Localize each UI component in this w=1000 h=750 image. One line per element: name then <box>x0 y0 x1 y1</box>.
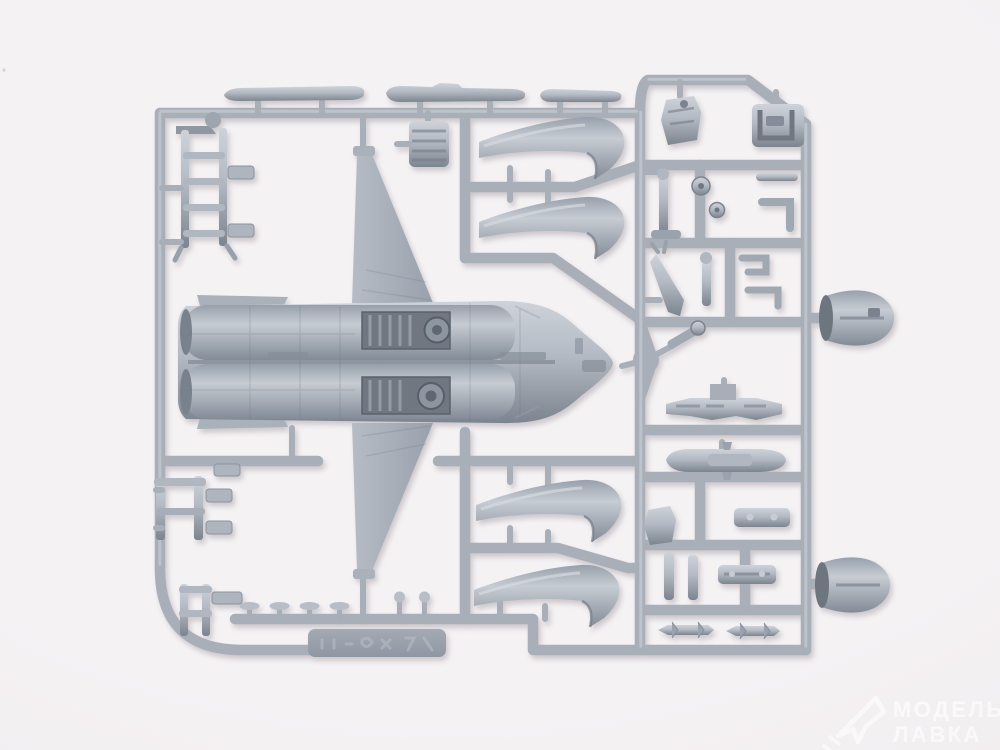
watermark-line2: ЛАВКА <box>893 722 982 747</box>
part-boarding-ladder: boarding ladder <box>162 126 254 260</box>
main-gear-bay-lower <box>362 377 450 414</box>
sprue-photo-canvas: Gray injection-molded plastic model kit … <box>0 0 1000 750</box>
gate-paddle <box>214 464 240 476</box>
part-afterburner-block: afterburner section block <box>397 121 449 167</box>
part-twin-bars <box>664 552 698 600</box>
paper-plane-icon <box>824 698 884 750</box>
part-exhaust-nozzle-lower: exhaust nozzle cone (lower) <box>815 557 890 612</box>
main-gear-bay-upper <box>362 312 450 349</box>
photo-model-kit-sprue: Gray injection-molded plastic model kit … <box>0 0 1000 750</box>
sprue: Gray injection-molded plastic model kit … <box>154 79 894 657</box>
part-main-gear-strut: main landing gear strut <box>651 168 681 239</box>
part-actuators <box>756 173 798 228</box>
part-ejection-seat: ejection seat <box>661 96 701 145</box>
part-rail-plate-lower: launch rail plate (lower) <box>718 565 776 584</box>
part-gun-strut: gun / small strut <box>650 242 778 316</box>
nose-gear-bay <box>582 360 606 372</box>
part-gear-door-frame: landing gear door frame <box>154 476 232 540</box>
dust-speck <box>2 68 5 71</box>
part-rail-plate-upper: launch rail plate (upper) <box>734 508 790 527</box>
watermark-line1: МОДЕЛЬНАЯ <box>893 697 1000 722</box>
part-weapons-pylon: weapons pylon <box>666 384 782 420</box>
part-cockpit-tub: cockpit tub <box>752 104 804 147</box>
embossed-tab: illegible raised mould lettering <box>308 629 446 657</box>
part-exhaust-nozzle-upper: exhaust nozzle cone (upper) <box>819 290 894 345</box>
part-missile-right: missile (right) <box>726 623 780 639</box>
watermark: МОДЕЛЬНАЯ ЛАВКА <box>824 697 1000 750</box>
part-mini-seat <box>644 506 676 545</box>
part-missile-left: missile (left) <box>658 622 714 638</box>
part-small-access-frame: small access frame <box>179 584 242 636</box>
